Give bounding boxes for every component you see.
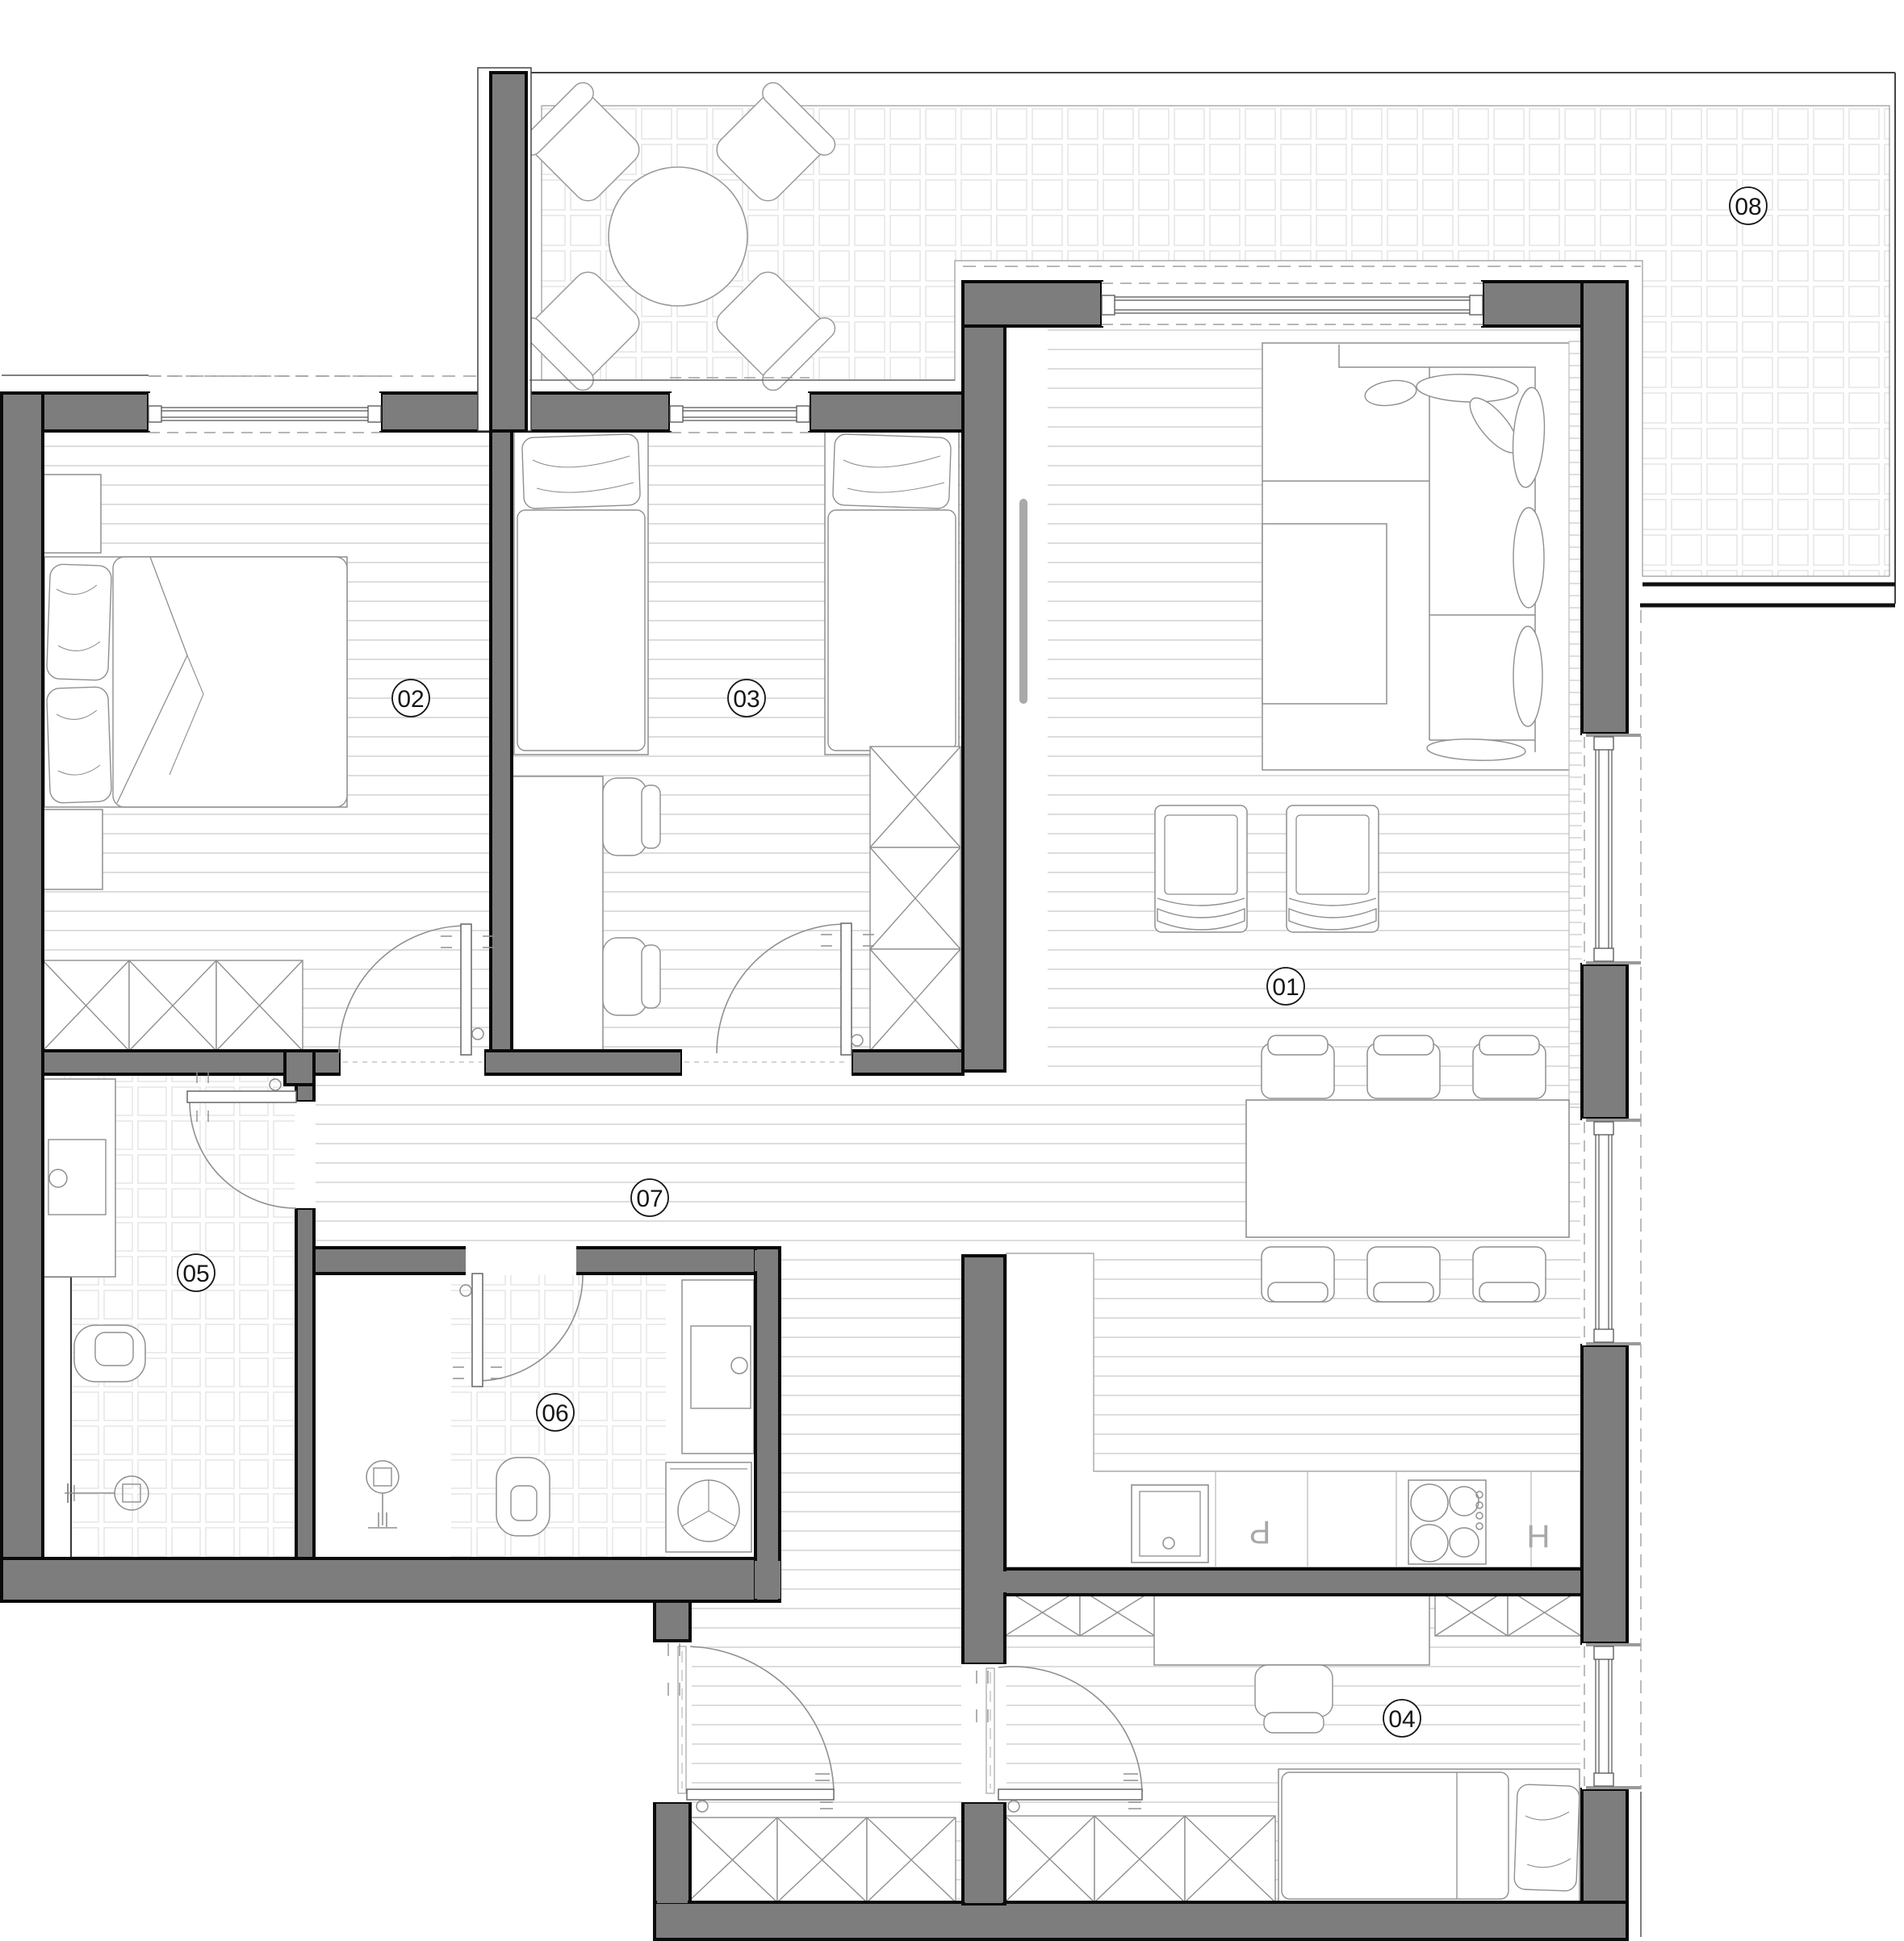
svg-text:02: 02 <box>397 686 424 713</box>
svg-text:03: 03 <box>733 686 760 713</box>
svg-text:06: 06 <box>542 1400 568 1427</box>
svg-text:04: 04 <box>1388 1706 1415 1733</box>
svg-text:H: H <box>1527 1519 1550 1554</box>
svg-text:08: 08 <box>1735 194 1761 220</box>
svg-text:P: P <box>1249 1514 1271 1550</box>
svg-text:07: 07 <box>636 1186 663 1212</box>
svg-text:05: 05 <box>182 1261 209 1287</box>
svg-text:01: 01 <box>1272 974 1299 1001</box>
